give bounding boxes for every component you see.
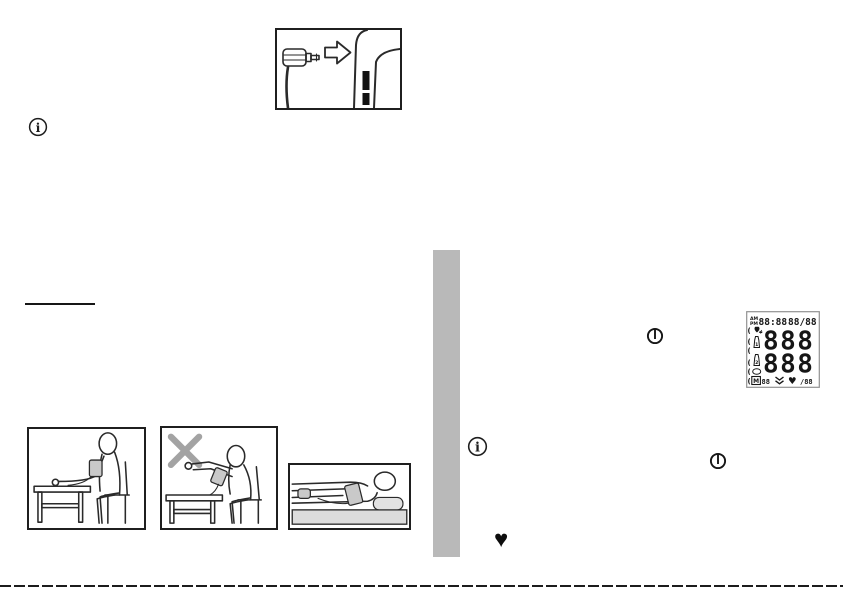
chair (238, 467, 261, 523)
cuff-plug-illustration (277, 30, 400, 108)
power-button-icon (646, 327, 664, 345)
cuff-tube (287, 67, 289, 108)
socket-slot-bottom (363, 93, 370, 105)
pulse-digits: /88 (800, 378, 813, 386)
diastolic-digits: 888 (763, 350, 814, 380)
segment-marker: ( (748, 378, 751, 386)
svg-text:M: M (753, 378, 759, 385)
section-divider-bar (433, 250, 460, 557)
socket-slot-top (363, 71, 370, 90)
cross-icon (171, 437, 199, 465)
arrow-right-icon (325, 42, 351, 64)
pulse-heart-icon: ♥ (788, 376, 797, 387)
person-hand (185, 463, 192, 470)
svg-text:1: 1 (755, 342, 758, 348)
person-head (374, 472, 395, 490)
person-hand (52, 479, 58, 485)
svg-text:i: i (36, 120, 41, 135)
info-icon: i (28, 117, 48, 137)
plug-tip (311, 56, 319, 60)
svg-text:i: i (475, 441, 480, 456)
info-icon: i (467, 436, 488, 457)
person-hand (298, 489, 310, 499)
heart-icon: ♥ (494, 528, 508, 552)
posture-correct-figure (27, 427, 146, 530)
manual-page: { "colors": { "divider_bar": "#b9b9b9", … (0, 0, 843, 596)
device-edge-inner (374, 49, 400, 108)
lcd-display-figure: AM PM 88:88 88/88 ( ( ( ( ( ( 1 2 M (746, 311, 820, 388)
heading-underline (25, 303, 95, 305)
segment-marker: ( (748, 327, 751, 335)
footer-rule (0, 585, 843, 587)
pillow (373, 497, 403, 509)
segment-marker: ( (748, 359, 751, 367)
cuff (89, 460, 102, 477)
person-head (99, 433, 116, 454)
pm-indicator: PM (750, 321, 758, 327)
posture-wrong-figure (160, 426, 278, 530)
person-head (227, 445, 244, 466)
posture-lying-figure (288, 463, 411, 530)
cuff-plug-connection-figure (275, 28, 402, 110)
svg-text:2: 2 (755, 360, 758, 366)
bed (292, 510, 407, 524)
segment-marker: ( (748, 368, 751, 376)
segment-marker: ( (748, 347, 751, 355)
plug-barrel (283, 49, 306, 66)
segment-marker: ( (748, 338, 751, 346)
power-button-icon (709, 452, 727, 470)
